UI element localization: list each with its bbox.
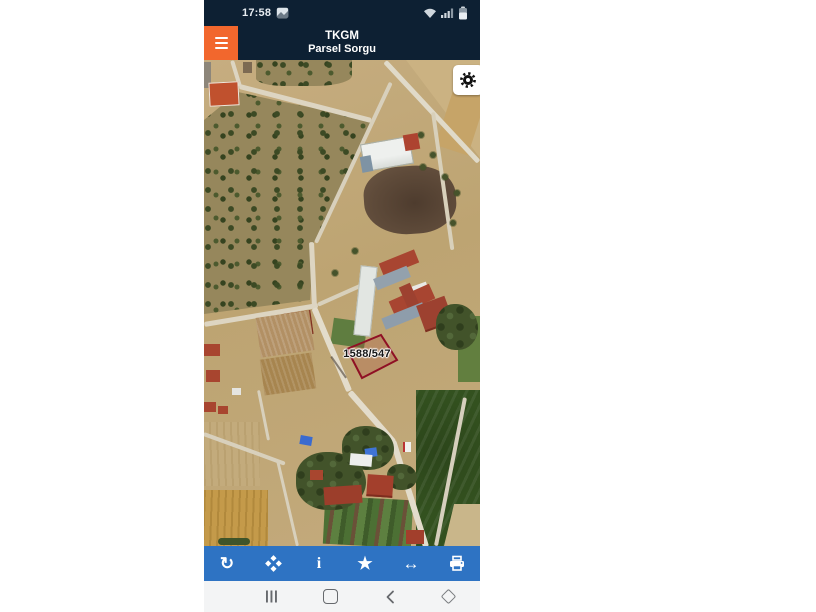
- gear-icon: [458, 70, 478, 90]
- favorite-button[interactable]: ★: [348, 549, 382, 579]
- phone-screen: 17:58 TKGM P: [204, 0, 480, 612]
- status-time: 17:58: [242, 7, 271, 19]
- menu-button[interactable]: [204, 26, 238, 60]
- status-bar: 17:58: [204, 0, 480, 26]
- measure-button[interactable]: ↔: [394, 549, 428, 579]
- app-subtitle: Parsel Sorgu: [308, 43, 376, 57]
- print-button[interactable]: [440, 549, 474, 579]
- screenshot-icon: [276, 7, 289, 19]
- printer-icon: [448, 555, 466, 572]
- settings-button[interactable]: [453, 65, 480, 95]
- wifi-icon: [423, 7, 437, 19]
- status-right: [423, 6, 468, 20]
- battery-icon: [458, 6, 468, 20]
- app-title: TKGM: [325, 29, 359, 43]
- parcel-boundary: [204, 60, 480, 546]
- center-location-button[interactable]: [256, 549, 290, 579]
- header-titles: TKGM Parsel Sorgu: [204, 26, 480, 60]
- recent-apps-icon: [264, 589, 279, 604]
- map-toolbar: ↻ i ★ ↔: [204, 546, 480, 581]
- signal-icon: [441, 7, 454, 19]
- app-header: TKGM Parsel Sorgu: [204, 26, 480, 60]
- info-button[interactable]: i: [302, 549, 336, 579]
- page-canvas: 17:58 TKGM P: [0, 0, 816, 612]
- diamond-icon: [441, 589, 457, 605]
- android-navbar: [204, 581, 480, 612]
- star-icon: ★: [357, 555, 372, 572]
- window-diamond-button[interactable]: [434, 584, 464, 610]
- back-icon: [384, 589, 396, 605]
- refresh-icon: ↻: [220, 555, 234, 572]
- hamburger-menu-icon: [215, 37, 228, 39]
- home-button[interactable]: [315, 584, 345, 610]
- info-icon: i: [317, 556, 321, 572]
- center-diamond-icon: [265, 555, 282, 572]
- home-icon: [323, 589, 338, 604]
- measure-arrow-icon: ↔: [403, 555, 420, 572]
- parcel-label: 1588/547: [334, 348, 400, 360]
- satellite-map[interactable]: 1588/547: [204, 60, 480, 546]
- recent-apps-button[interactable]: [256, 584, 286, 610]
- refresh-button[interactable]: ↻: [210, 549, 244, 579]
- status-left: 17:58: [242, 7, 289, 19]
- back-button[interactable]: [375, 584, 405, 610]
